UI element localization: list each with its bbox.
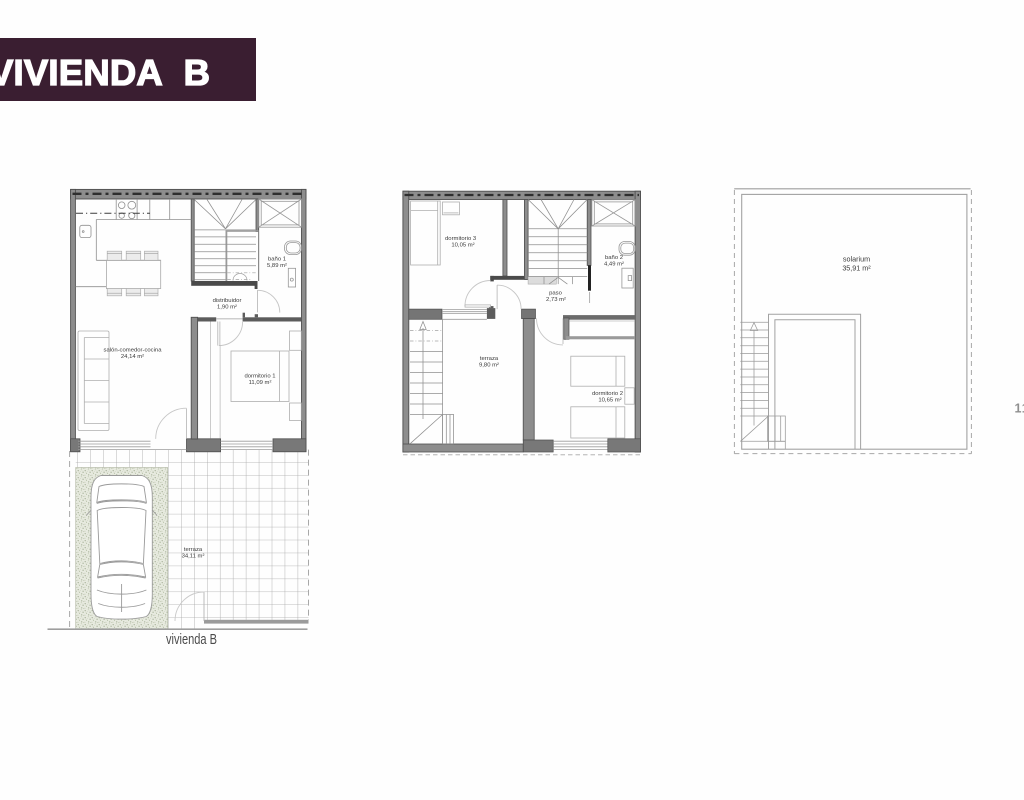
svg-text:24,14 m²: 24,14 m² — [121, 354, 144, 360]
svg-text:solarium: solarium — [843, 255, 870, 264]
svg-text:paso: paso — [549, 291, 562, 297]
svg-text:5,89 m²: 5,89 m² — [267, 263, 287, 269]
svg-text:4,49 m²: 4,49 m² — [604, 262, 624, 268]
svg-text:dormitorio 1: dormitorio 1 — [244, 374, 275, 380]
svg-text:baño 1: baño 1 — [268, 257, 286, 263]
svg-text:terraza: terraza — [480, 356, 499, 362]
svg-text:34,11 m²: 34,11 m² — [182, 554, 205, 560]
svg-text:10,05 m²: 10,05 m² — [451, 243, 474, 249]
svg-text:salón-comedor-cocina: salón-comedor-cocina — [104, 348, 163, 354]
svg-text:11: 11 — [1015, 402, 1024, 416]
svg-text:1,90 m²: 1,90 m² — [217, 305, 237, 311]
svg-text:10,65 m²: 10,65 m² — [598, 398, 621, 404]
svg-text:2,73 m²: 2,73 m² — [546, 297, 566, 303]
svg-text:terraza: terraza — [184, 547, 203, 553]
svg-text:35,91 m²: 35,91 m² — [842, 264, 871, 273]
svg-text:11,09 m²: 11,09 m² — [249, 380, 272, 386]
svg-text:dormitorio 2: dormitorio 2 — [592, 391, 623, 397]
svg-text:dormitorio 3: dormitorio 3 — [445, 236, 477, 242]
svg-text:vivienda B: vivienda B — [166, 632, 217, 648]
svg-text:baño 2: baño 2 — [605, 255, 623, 261]
svg-text:9,80 m²: 9,80 m² — [479, 363, 499, 369]
svg-text:distribuidor: distribuidor — [213, 298, 242, 304]
